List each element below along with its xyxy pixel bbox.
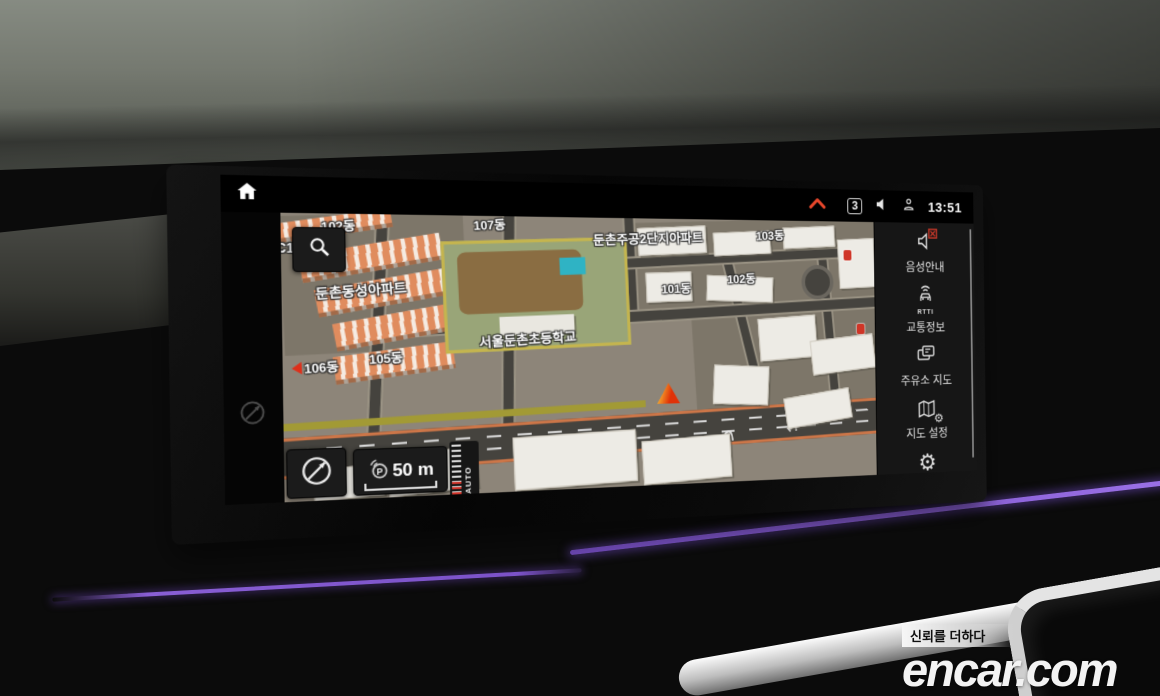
sidebar-item-label: 교통정보	[906, 317, 945, 335]
gas-station-cards-icon	[915, 342, 937, 371]
auto-zoom-label: AUTO	[463, 444, 473, 494]
map-label: 106동	[291, 357, 339, 378]
poi-marker	[857, 324, 865, 334]
building	[837, 238, 876, 289]
building	[641, 434, 732, 486]
compass-button[interactable]	[286, 447, 347, 499]
infotainment-display-bezel: 3 13:51	[166, 165, 987, 545]
map-canvas[interactable]: C1 102동 107동 둔촌주공2단지아파트 103동 101동 102동 둔…	[280, 213, 876, 503]
building	[782, 226, 835, 249]
driver-profile-icon	[902, 196, 917, 217]
navigation-screen: 3 13:51	[220, 175, 976, 505]
roundabout	[801, 265, 833, 299]
voice-muted-checkbox-icon	[928, 227, 937, 244]
settings-gear-icon: ⚙	[918, 450, 936, 473]
map-scale-value: 50 m	[392, 459, 434, 482]
status-icons: 3 13:51	[809, 194, 974, 219]
map-label: 105동	[368, 348, 403, 368]
current-position-marker	[657, 383, 680, 404]
home-icon	[234, 179, 260, 209]
building	[757, 314, 818, 361]
svg-text:P: P	[377, 466, 383, 476]
map-label: 101동	[661, 280, 691, 298]
car-interior-scene: 3 13:51	[0, 0, 1160, 696]
watermark: 신뢰를 더하다 encar.com	[902, 624, 1117, 691]
sidebar-item-label: 지도 설정	[906, 423, 948, 442]
compass-icon	[237, 398, 267, 432]
sidebar-item-voice-guidance[interactable]: 음성안내	[874, 230, 974, 275]
poi-marker	[844, 250, 852, 260]
sidebar-item-map-settings[interactable]: ⚙ 지도 설정	[877, 395, 977, 443]
map-label: 102동	[727, 270, 756, 287]
gear-icon: ⚙	[934, 412, 944, 424]
rtti-car-icon	[914, 281, 936, 310]
search-button[interactable]	[292, 227, 346, 272]
sidebar-item-label: 음성안내	[906, 257, 945, 275]
map-label: 103동	[755, 227, 784, 244]
rtti-badge: RTTI	[917, 310, 933, 316]
school-pool	[559, 257, 586, 275]
auto-zoom-slider[interactable]: AUTO	[449, 441, 479, 498]
map-label: 107동	[473, 215, 506, 234]
sidebar-item-traffic-info[interactable]: RTTI 교통정보	[875, 283, 975, 336]
nav-sidebar: 음성안내	[874, 222, 977, 475]
notification-badge: 3	[847, 198, 862, 214]
search-icon	[306, 235, 332, 265]
alert-chevron-up-icon[interactable]	[809, 196, 827, 214]
zoom-red-ticks	[452, 482, 462, 495]
map-scale-button[interactable]: P 50 m	[353, 446, 448, 496]
building	[513, 429, 638, 491]
route-chevron-icon	[291, 362, 302, 376]
zoom-tick-marks	[451, 444, 461, 494]
clock: 13:51	[928, 199, 962, 215]
watermark-brand: encar.com	[902, 648, 1117, 691]
sidebar-item-gas-station-map[interactable]: 주유소 지도	[876, 343, 976, 390]
screen-body: C1 102동 107동 둔촌주공2단지아파트 103동 101동 102동 둔…	[221, 212, 977, 505]
speaker-icon	[874, 195, 890, 217]
sidebar-item-label: 주유소 지도	[901, 370, 952, 389]
compass-icon	[299, 453, 335, 494]
parking-signal-icon: P	[367, 457, 390, 485]
folded-map-icon: ⚙	[916, 397, 938, 422]
sidebar-item-label: 설정	[918, 476, 938, 495]
door-trim	[0, 214, 172, 346]
building	[713, 365, 769, 406]
map-label: 둔촌주공2단지아파트	[593, 227, 704, 249]
sidebar-item-settings[interactable]: ⚙ 설정	[877, 447, 976, 496]
left-toolbar-strip	[221, 212, 285, 505]
home-button[interactable]	[234, 179, 260, 209]
